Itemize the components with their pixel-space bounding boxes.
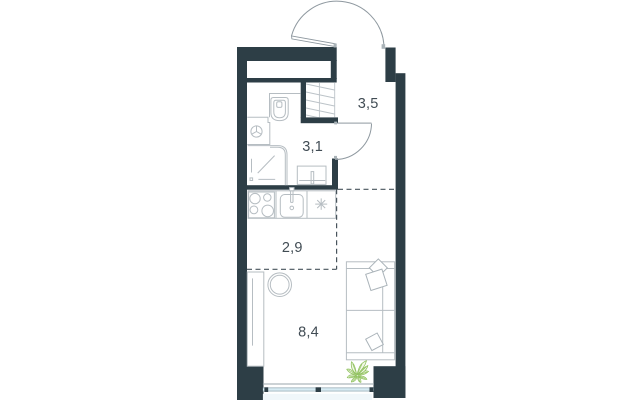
- svg-text:3,1: 3,1: [302, 139, 323, 155]
- svg-text:2,9: 2,9: [282, 240, 303, 256]
- svg-text:8,4: 8,4: [298, 325, 319, 341]
- svg-text:3,5: 3,5: [358, 96, 379, 112]
